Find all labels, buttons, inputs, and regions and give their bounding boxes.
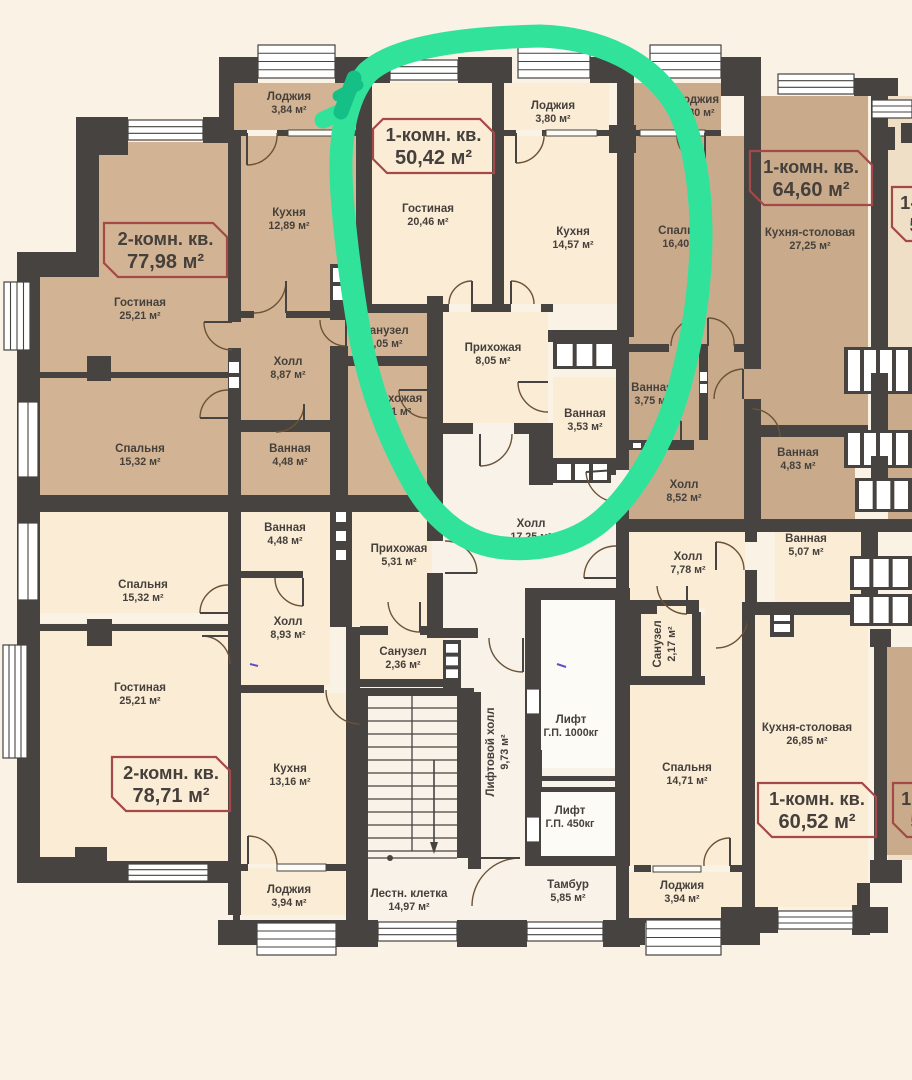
svg-text:Гостиная: Гостиная: [114, 297, 166, 309]
svg-text:2-комн. кв.: 2-комн. кв.: [123, 763, 219, 783]
svg-text:60,52 м²: 60,52 м²: [778, 811, 855, 833]
svg-text:Гостиная: Гостиная: [114, 682, 166, 694]
svg-text:9,73 м²: 9,73 м²: [499, 734, 511, 770]
svg-text:Холл: Холл: [274, 356, 303, 368]
svg-text:4,48 м²: 4,48 м²: [267, 535, 303, 547]
svg-text:Спальня: Спальня: [662, 762, 712, 774]
svg-text:8,05 м²: 8,05 м²: [475, 355, 511, 367]
svg-text:50,42 м²: 50,42 м²: [395, 147, 472, 169]
svg-text:2-комн. кв.: 2-комн. кв.: [118, 229, 214, 249]
svg-text:3,80 м²: 3,80 м²: [535, 113, 571, 125]
svg-text:3,94 м²: 3,94 м²: [271, 897, 307, 909]
svg-text:14,97 м²: 14,97 м²: [388, 901, 430, 913]
svg-text:Спальня: Спальня: [115, 443, 165, 455]
svg-text:Кухня: Кухня: [556, 226, 590, 238]
svg-text:8,52 м²: 8,52 м²: [666, 492, 702, 504]
svg-text:3,94 м²: 3,94 м²: [664, 893, 700, 905]
svg-text:5,31 м²: 5,31 м²: [381, 556, 417, 568]
svg-text:25,21 м²: 25,21 м²: [119, 310, 161, 322]
svg-text:Кухня-столовая: Кухня-столовая: [762, 722, 852, 734]
svg-text:1-комн. кв.: 1-комн. кв.: [900, 193, 912, 213]
svg-text:Прихожая: Прихожая: [465, 342, 522, 354]
svg-text:27,25 м²: 27,25 м²: [789, 240, 831, 252]
svg-text:Лоджия: Лоджия: [267, 91, 311, 103]
svg-text:4,48 м²: 4,48 м²: [272, 456, 308, 468]
svg-text:Лифтовой холл: Лифтовой холл: [485, 707, 497, 796]
svg-text:2,17 м²: 2,17 м²: [666, 626, 678, 662]
svg-text:Ванная: Ванная: [269, 443, 311, 455]
svg-text:1-комн. кв.: 1-комн. кв.: [763, 157, 859, 177]
svg-text:64,60 м²: 64,60 м²: [772, 179, 849, 201]
svg-text:Кухня: Кухня: [273, 763, 307, 775]
svg-text:Лоджия: Лоджия: [267, 884, 311, 896]
svg-text:Ванная: Ванная: [777, 447, 819, 459]
svg-text:13,16 м²: 13,16 м²: [269, 776, 311, 788]
svg-text:77,98 м²: 77,98 м²: [127, 251, 204, 273]
svg-text:8,87 м²: 8,87 м²: [270, 369, 306, 381]
svg-text:Холл: Холл: [670, 479, 699, 491]
svg-text:Лоджия: Лоджия: [660, 880, 704, 892]
svg-text:Спальня: Спальня: [118, 579, 168, 591]
svg-text:20,46 м²: 20,46 м²: [407, 216, 449, 228]
svg-text:Ванная: Ванная: [785, 533, 827, 545]
svg-text:25,21 м²: 25,21 м²: [119, 695, 161, 707]
svg-text:8,93 м²: 8,93 м²: [270, 629, 306, 641]
svg-text:2,36 м²: 2,36 м²: [385, 659, 421, 671]
svg-text:5,07 м²: 5,07 м²: [788, 546, 824, 558]
svg-text:Холл: Холл: [274, 616, 303, 628]
svg-text:Ванная: Ванная: [264, 522, 306, 534]
svg-text:Холл: Холл: [674, 551, 703, 563]
svg-text:Лифт: Лифт: [556, 714, 587, 726]
svg-text:Гостиная: Гостиная: [402, 203, 454, 215]
svg-text:26,85 м²: 26,85 м²: [786, 735, 828, 747]
svg-text:4,83 м²: 4,83 м²: [780, 460, 816, 472]
svg-text:Кухня-столовая: Кухня-столовая: [765, 227, 855, 239]
svg-text:78,71 м²: 78,71 м²: [132, 785, 209, 807]
svg-text:Лестн. клетка: Лестн. клетка: [371, 888, 448, 900]
svg-text:1-комн. кв.: 1-комн. кв.: [386, 125, 482, 145]
svg-text:Кухня: Кухня: [272, 207, 306, 219]
svg-text:7,78 м²: 7,78 м²: [670, 564, 706, 576]
svg-text:3,84 м²: 3,84 м²: [271, 104, 307, 116]
svg-text:Санузел: Санузел: [379, 646, 426, 658]
svg-text:Холл: Холл: [517, 518, 546, 530]
svg-text:15,32 м²: 15,32 м²: [119, 456, 161, 468]
svg-text:1-комн. кв.: 1-комн. кв.: [901, 789, 912, 809]
svg-text:Лоджия: Лоджия: [531, 100, 575, 112]
svg-text:Г.П. 1000кг: Г.П. 1000кг: [544, 727, 599, 739]
svg-text:3,53 м²: 3,53 м²: [567, 421, 603, 433]
svg-text:14,71 м²: 14,71 м²: [666, 775, 708, 787]
svg-text:15,32 м²: 15,32 м²: [122, 592, 164, 604]
svg-text:Г.П. 450кг: Г.П. 450кг: [546, 818, 595, 830]
svg-text:Прихожая: Прихожая: [371, 543, 428, 555]
svg-text:12,89 м²: 12,89 м²: [268, 220, 310, 232]
svg-text:Ванная: Ванная: [564, 408, 606, 420]
svg-text:Санузел: Санузел: [652, 620, 664, 667]
svg-text:5,85 м²: 5,85 м²: [550, 892, 586, 904]
svg-text:1-комн. кв.: 1-комн. кв.: [769, 789, 865, 809]
svg-text:Лифт: Лифт: [555, 805, 586, 817]
svg-text:14,57 м²: 14,57 м²: [552, 239, 594, 251]
svg-text:Тамбур: Тамбур: [547, 879, 589, 891]
